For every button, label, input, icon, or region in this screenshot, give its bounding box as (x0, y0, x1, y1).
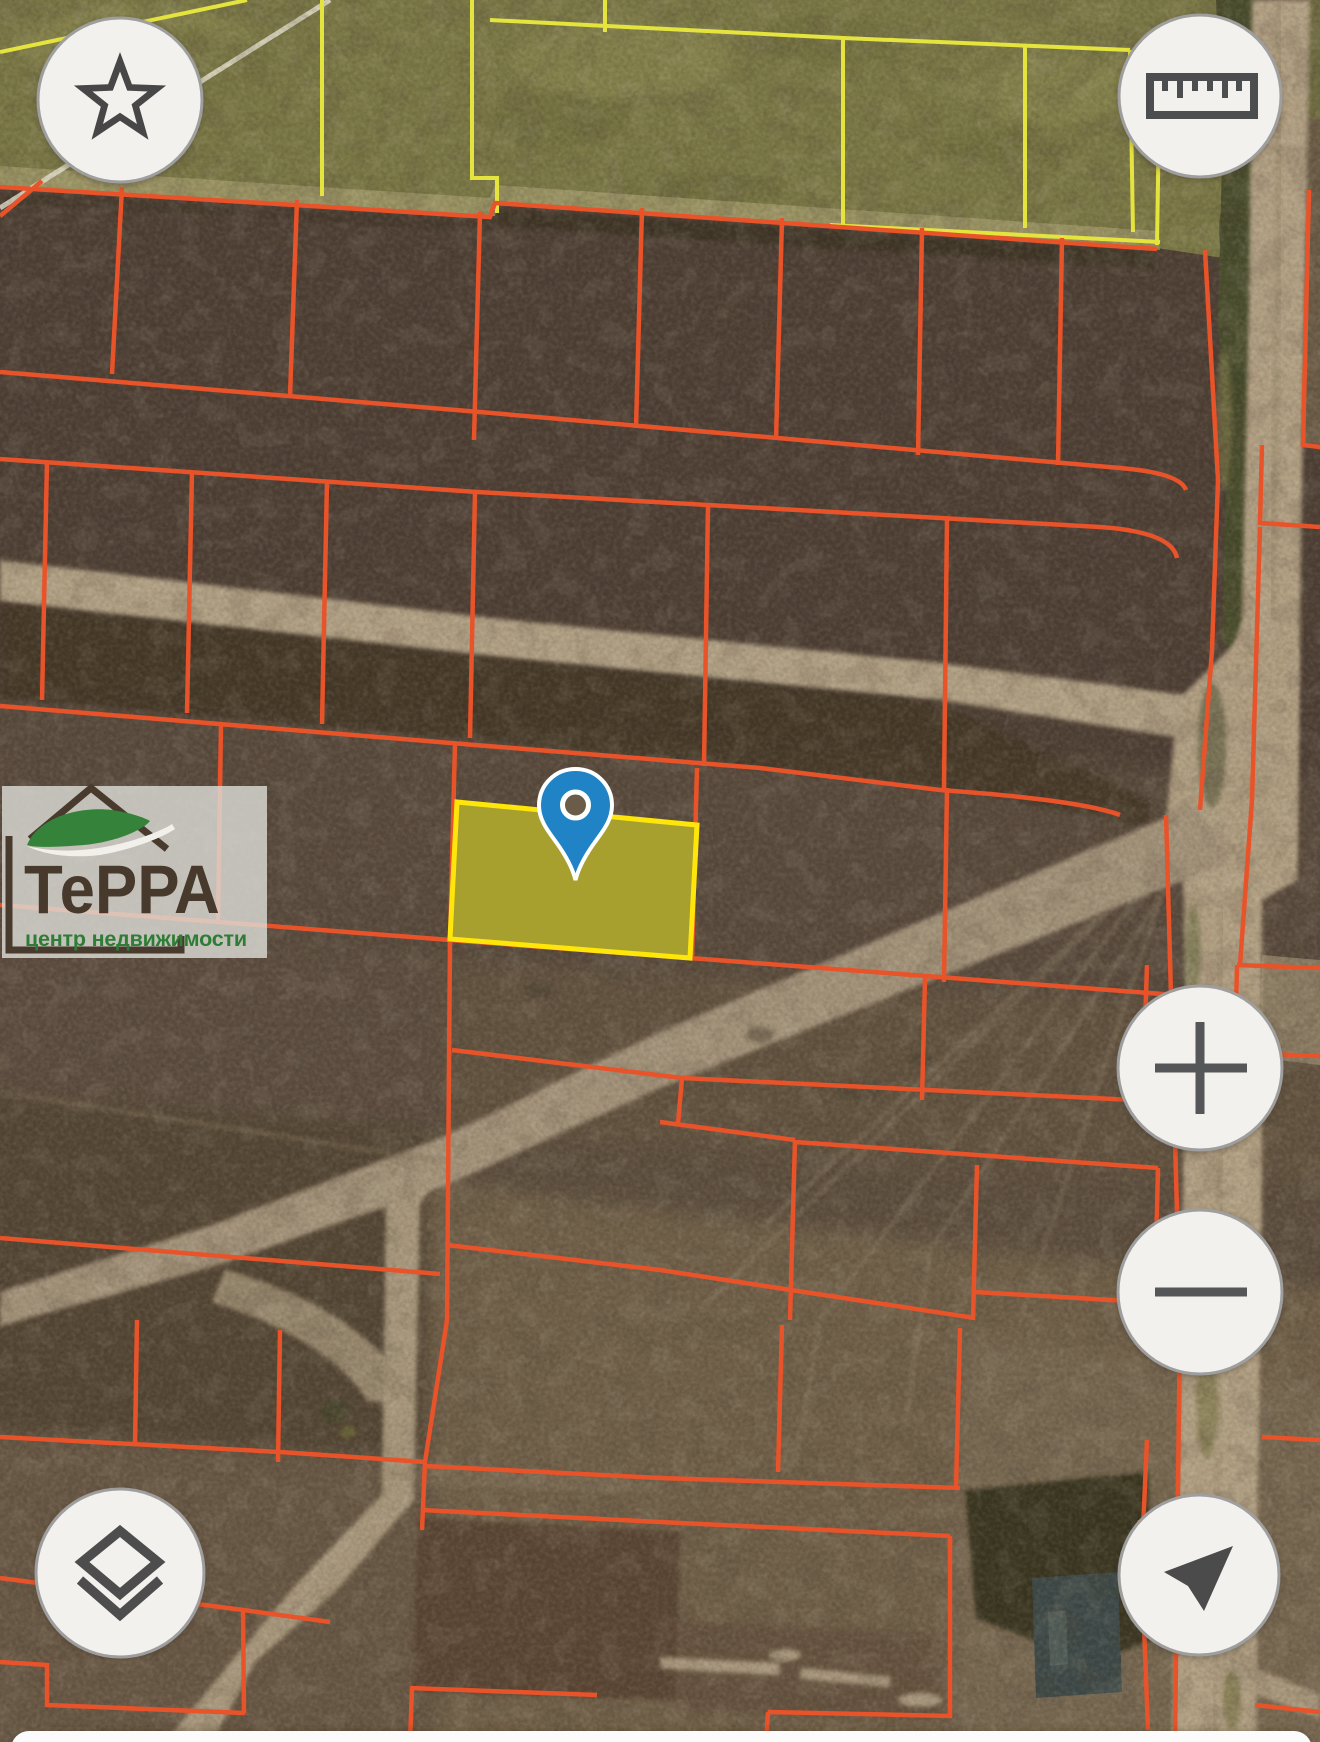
svg-text:центр недвижимости: центр недвижимости (25, 927, 247, 951)
svg-text:ТеРРА: ТеРРА (24, 852, 220, 929)
